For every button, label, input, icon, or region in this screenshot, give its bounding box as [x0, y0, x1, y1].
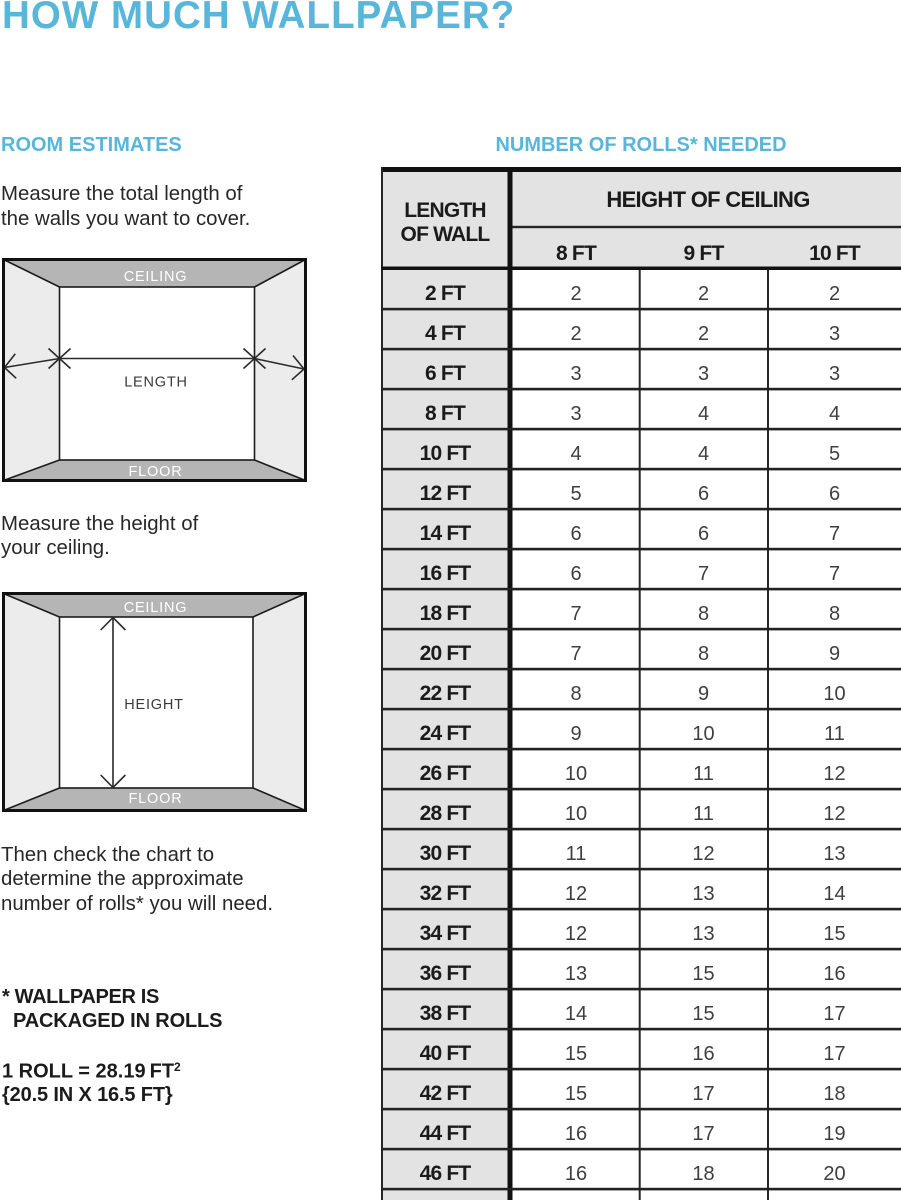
svg-text:40 FT: 40 FT — [420, 1042, 472, 1065]
svg-text:10: 10 — [692, 723, 714, 745]
svg-text:3: 3 — [570, 403, 581, 425]
svg-text:12: 12 — [565, 883, 587, 905]
svg-text:HEIGHT OF CEILING: HEIGHT OF CEILING — [606, 187, 809, 212]
svg-text:7: 7 — [829, 563, 840, 585]
svg-text:36 FT: 36 FT — [420, 962, 472, 985]
svg-text:5: 5 — [570, 483, 581, 505]
svg-text:24 FT: 24 FT — [420, 722, 472, 745]
svg-text:16: 16 — [823, 963, 845, 985]
svg-text:16 FT: 16 FT — [420, 562, 472, 585]
svg-text:2: 2 — [829, 283, 840, 305]
svg-text:15: 15 — [823, 923, 845, 945]
svg-text:11: 11 — [566, 843, 587, 865]
svg-text:13: 13 — [565, 963, 587, 985]
svg-text:20 FT: 20 FT — [420, 642, 472, 665]
svg-text:12 FT: 12 FT — [420, 482, 472, 505]
svg-text:3: 3 — [698, 363, 709, 385]
svg-text:2: 2 — [698, 323, 709, 345]
svg-text:34 FT: 34 FT — [420, 922, 472, 945]
svg-text:7: 7 — [698, 563, 709, 585]
svg-text:3: 3 — [829, 363, 840, 385]
svg-text:2: 2 — [570, 323, 581, 345]
svg-text:4: 4 — [570, 443, 581, 465]
svg-text:11: 11 — [693, 763, 714, 785]
svg-text:32 FT: 32 FT — [420, 882, 472, 905]
svg-text:10: 10 — [565, 803, 587, 825]
svg-text:11: 11 — [824, 723, 845, 745]
svg-text:8: 8 — [698, 603, 709, 625]
svg-text:4 FT: 4 FT — [425, 322, 466, 345]
svg-text:17: 17 — [692, 1123, 714, 1145]
svg-text:8: 8 — [570, 683, 581, 705]
svg-text:15: 15 — [692, 963, 714, 985]
svg-text:10: 10 — [565, 763, 587, 785]
svg-text:12: 12 — [565, 923, 587, 945]
svg-text:4: 4 — [698, 443, 709, 465]
svg-text:13: 13 — [692, 883, 714, 905]
svg-text:26 FT: 26 FT — [420, 762, 472, 785]
svg-text:18 FT: 18 FT — [420, 602, 472, 625]
svg-text:14: 14 — [565, 1003, 587, 1025]
svg-text:8: 8 — [829, 603, 840, 625]
svg-text:7: 7 — [570, 603, 581, 625]
svg-text:7: 7 — [570, 643, 581, 665]
svg-text:20: 20 — [823, 1163, 845, 1185]
svg-text:4: 4 — [829, 403, 840, 425]
svg-text:10 FT: 10 FT — [809, 242, 861, 265]
svg-text:14: 14 — [823, 883, 845, 905]
svg-text:42 FT: 42 FT — [420, 1082, 472, 1105]
svg-text:10 FT: 10 FT — [420, 442, 472, 465]
svg-text:9: 9 — [698, 683, 709, 705]
svg-text:17: 17 — [823, 1003, 845, 1025]
svg-text:16: 16 — [692, 1043, 714, 1065]
svg-text:15: 15 — [565, 1043, 587, 1065]
svg-text:CEILING: CEILING — [124, 269, 188, 285]
svg-text:9: 9 — [829, 643, 840, 665]
svg-text:15: 15 — [692, 1003, 714, 1025]
svg-text:12: 12 — [692, 843, 714, 865]
svg-text:19: 19 — [823, 1123, 845, 1145]
svg-text:44 FT: 44 FT — [420, 1122, 472, 1145]
svg-text:16: 16 — [565, 1123, 587, 1145]
svg-text:3: 3 — [570, 363, 581, 385]
svg-text:17: 17 — [692, 1083, 714, 1105]
svg-text:6: 6 — [698, 523, 709, 545]
svg-text:38 FT: 38 FT — [420, 1002, 472, 1025]
svg-text:6: 6 — [570, 563, 581, 585]
svg-text:7: 7 — [829, 523, 840, 545]
svg-text:16: 16 — [565, 1163, 587, 1185]
svg-text:8 FT: 8 FT — [556, 242, 597, 265]
svg-text:LENGTH: LENGTH — [124, 375, 188, 391]
svg-text:18: 18 — [692, 1163, 714, 1185]
svg-text:4: 4 — [698, 403, 709, 425]
svg-text:CEILING: CEILING — [124, 600, 188, 616]
svg-text:17: 17 — [823, 1043, 845, 1065]
svg-text:6: 6 — [698, 483, 709, 505]
svg-text:6 FT: 6 FT — [425, 362, 466, 385]
svg-text:6: 6 — [829, 483, 840, 505]
svg-text:2: 2 — [698, 283, 709, 305]
svg-text:LENGTH: LENGTH — [404, 199, 486, 222]
svg-text:13: 13 — [823, 843, 845, 865]
svg-text:15: 15 — [565, 1083, 587, 1105]
svg-text:OF WALL: OF WALL — [401, 223, 491, 246]
svg-text:2 FT: 2 FT — [425, 282, 466, 305]
svg-text:9 FT: 9 FT — [684, 242, 725, 265]
svg-text:6: 6 — [570, 523, 581, 545]
svg-text:FLOOR: FLOOR — [129, 791, 183, 807]
svg-text:5: 5 — [829, 443, 840, 465]
svg-text:FLOOR: FLOOR — [129, 464, 183, 480]
svg-text:14 FT: 14 FT — [420, 522, 472, 545]
svg-text:10: 10 — [823, 683, 845, 705]
svg-text:3: 3 — [829, 323, 840, 345]
svg-text:2: 2 — [570, 283, 581, 305]
svg-text:46 FT: 46 FT — [420, 1162, 472, 1185]
svg-text:12: 12 — [823, 803, 845, 825]
svg-text:HEIGHT: HEIGHT — [124, 697, 184, 713]
svg-text:18: 18 — [823, 1083, 845, 1105]
svg-text:11: 11 — [693, 803, 714, 825]
svg-text:22 FT: 22 FT — [420, 682, 472, 705]
svg-text:8 FT: 8 FT — [425, 402, 466, 425]
svg-text:8: 8 — [698, 643, 709, 665]
svg-text:30 FT: 30 FT — [420, 842, 472, 865]
svg-text:28 FT: 28 FT — [420, 802, 472, 825]
svg-text:9: 9 — [570, 723, 581, 745]
svg-text:13: 13 — [692, 923, 714, 945]
svg-text:12: 12 — [823, 763, 845, 785]
